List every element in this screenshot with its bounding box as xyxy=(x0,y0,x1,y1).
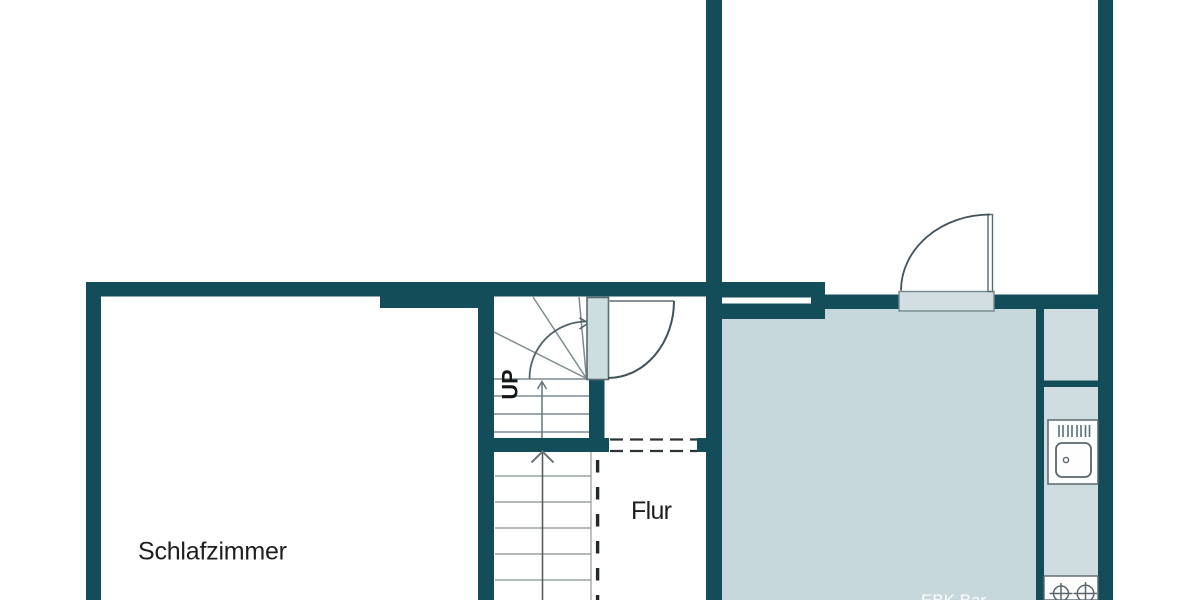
svg-text:EBK Bar: EBK Bar xyxy=(921,591,987,600)
svg-text:UP: UP xyxy=(498,370,523,400)
svg-text:Flur: Flur xyxy=(631,497,672,525)
svg-text:Schlafzimmer: Schlafzimmer xyxy=(138,538,287,566)
